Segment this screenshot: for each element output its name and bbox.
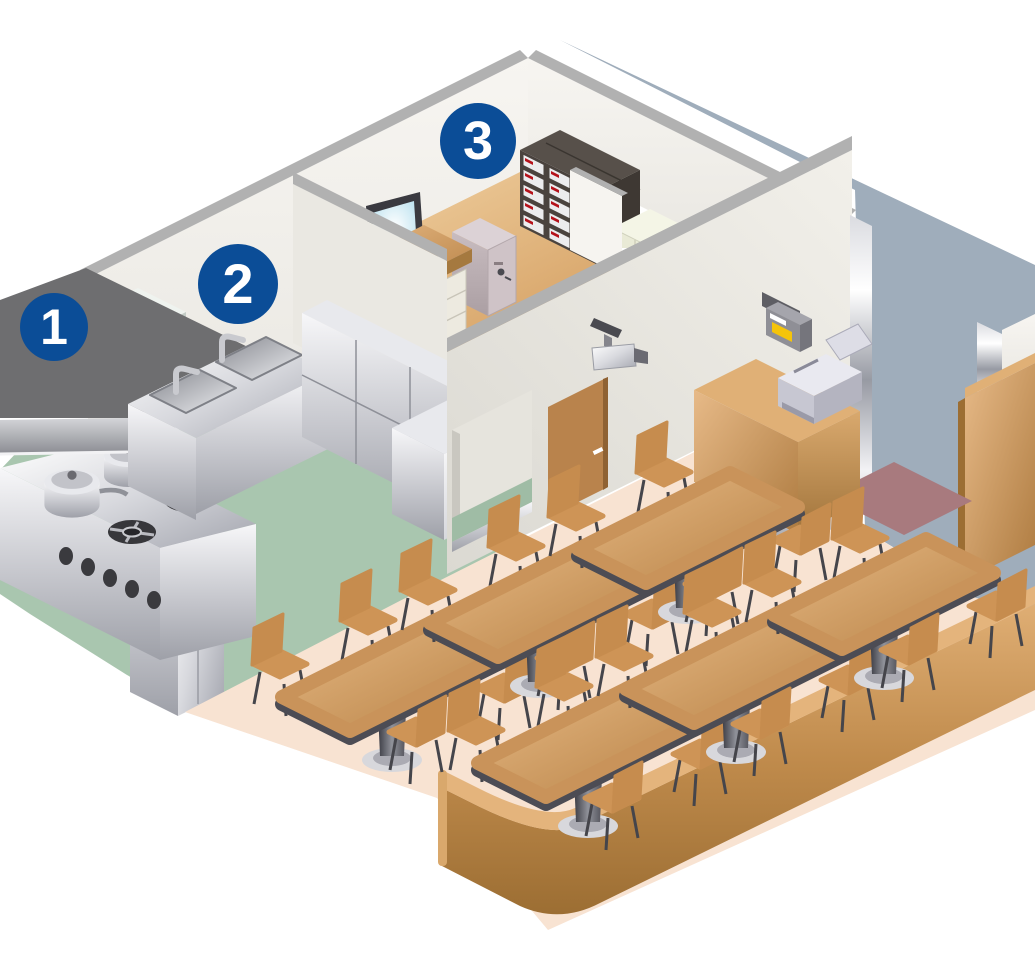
isometric-restaurant-floorplan: 1 2 3	[0, 0, 1035, 960]
callout-number: 3	[463, 114, 493, 168]
callout-number: 2	[222, 256, 253, 312]
callout-number: 1	[40, 302, 68, 352]
callout-badge-1[interactable]: 1	[20, 293, 88, 361]
callout-badge-3[interactable]: 3	[440, 103, 516, 179]
callout-badge-2[interactable]: 2	[198, 244, 278, 324]
floorplan-scene	[0, 0, 1035, 960]
burner	[108, 520, 156, 544]
entry-wood-cabinet	[958, 353, 1035, 584]
